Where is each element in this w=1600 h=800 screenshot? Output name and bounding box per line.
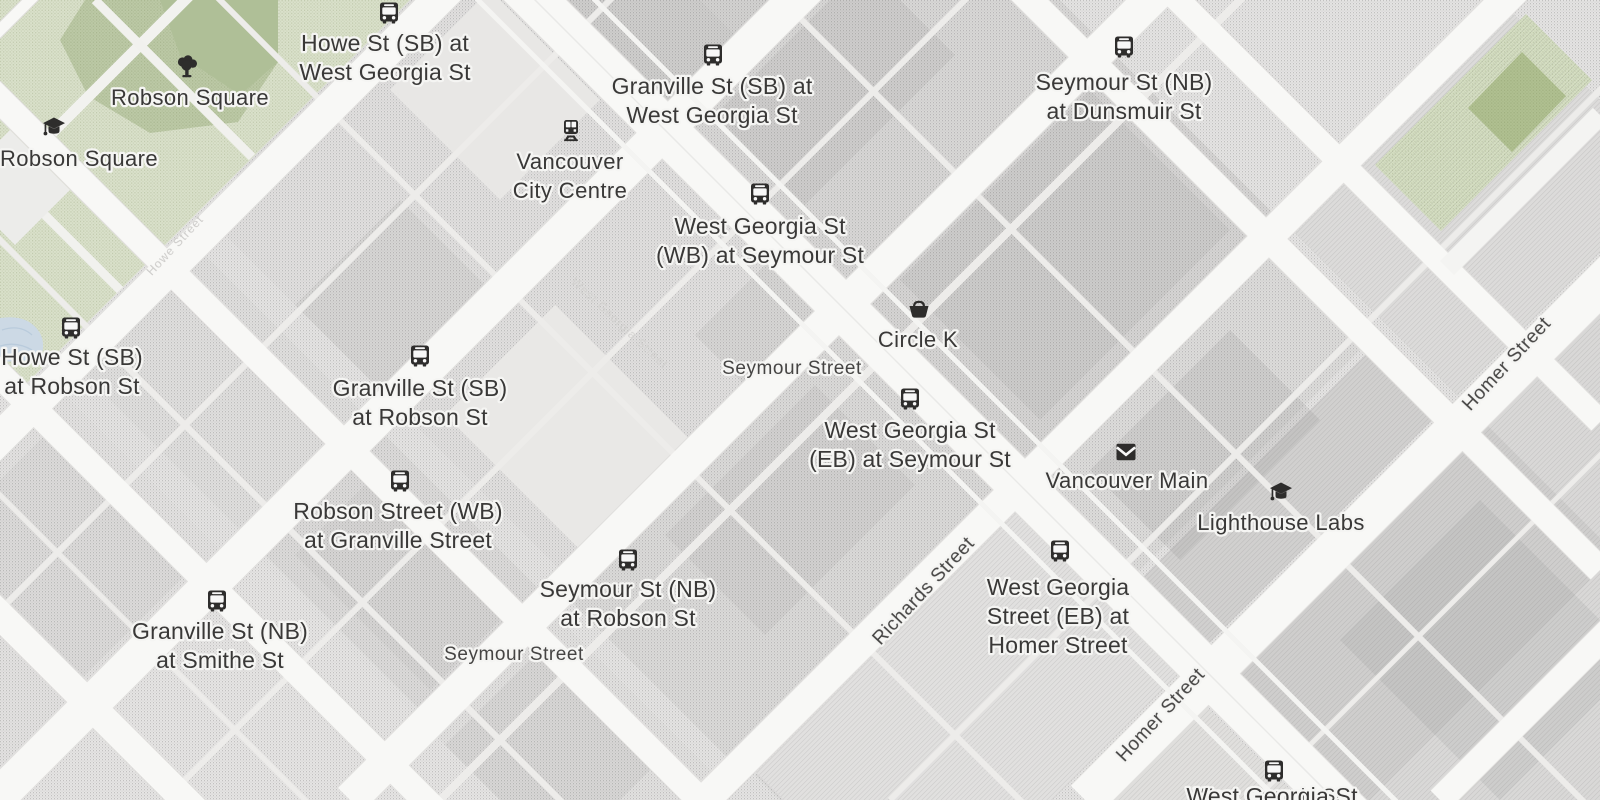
svg-text:(EB) at Seymour St: (EB) at Seymour St (809, 446, 1011, 472)
svg-text:at Robson St: at Robson St (4, 373, 140, 399)
svg-text:West Georgia St: West Georgia St (824, 417, 996, 443)
svg-text:Circle K: Circle K (878, 327, 958, 352)
svg-text:West Georgia St: West Georgia St (299, 59, 471, 85)
svg-text:West Georgia St: West Georgia St (1186, 783, 1358, 800)
svg-text:at Robson St: at Robson St (352, 404, 488, 430)
svg-text:Vancouver Main: Vancouver Main (1046, 468, 1209, 493)
svg-text:Seymour Street: Seymour Street (444, 644, 584, 665)
svg-text:at Dunsmuir St: at Dunsmuir St (1047, 98, 1202, 124)
svg-text:Granville St (NB): Granville St (NB) (132, 618, 308, 644)
svg-text:Lighthouse Labs: Lighthouse Labs (1197, 510, 1364, 535)
svg-text:Granville St (SB) at: Granville St (SB) at (612, 73, 813, 99)
svg-text:Street (EB) at: Street (EB) at (987, 603, 1130, 629)
svg-text:at Granville Street: at Granville Street (304, 527, 492, 553)
svg-text:Howe St (SB): Howe St (SB) (1, 344, 143, 370)
svg-text:Seymour Street: Seymour Street (722, 358, 862, 379)
svg-text:West Georgia St: West Georgia St (626, 102, 798, 128)
svg-text:Homer Street: Homer Street (988, 632, 1128, 658)
svg-text:Granville St (SB): Granville St (SB) (333, 375, 508, 401)
svg-text:West Georgia: West Georgia (987, 574, 1130, 600)
svg-text:City Centre: City Centre (513, 178, 627, 203)
svg-text:Vancouver: Vancouver (516, 149, 623, 174)
svg-text:Robson Square: Robson Square (0, 146, 158, 171)
svg-text:Robson Square: Robson Square (111, 85, 269, 110)
svg-text:Robson Street (WB): Robson Street (WB) (293, 498, 502, 524)
svg-text:at Smithe St: at Smithe St (156, 647, 284, 673)
svg-text:Seymour St (NB): Seymour St (NB) (1036, 69, 1213, 95)
svg-text:at Robson St: at Robson St (560, 605, 696, 631)
svg-text:West Georgia St: West Georgia St (674, 213, 846, 239)
svg-text:Seymour St (NB): Seymour St (NB) (540, 576, 717, 602)
svg-text:Howe St (SB) at: Howe St (SB) at (301, 30, 469, 56)
svg-text:(WB) at Seymour St: (WB) at Seymour St (656, 242, 865, 268)
